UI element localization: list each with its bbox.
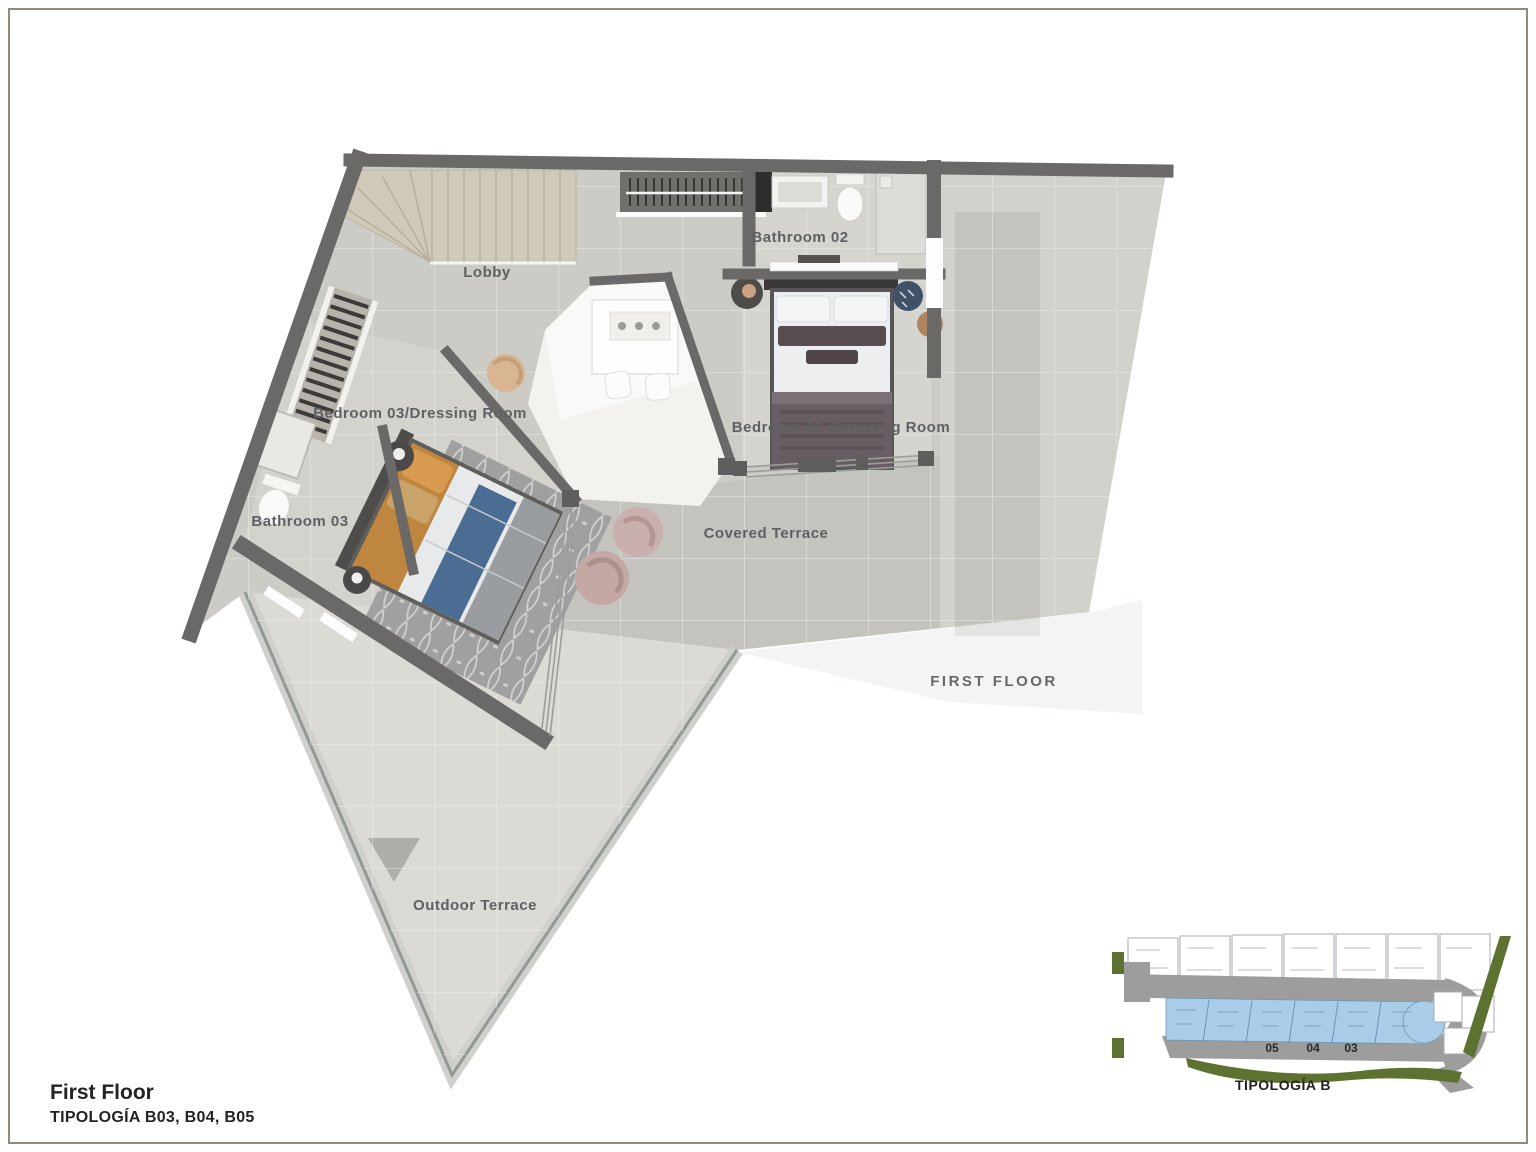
inset-unit-04: 04: [1306, 1041, 1320, 1055]
inset-caption: TIPOLOGÍA B: [1235, 1077, 1331, 1093]
inset-unit-05: 05: [1265, 1041, 1279, 1055]
kitchen-island: [592, 300, 678, 374]
toilet-icon: [837, 187, 863, 221]
label-bathroom02: Bathroom 02: [751, 229, 848, 246]
sheet-title: First Floor: [50, 1081, 154, 1104]
label-outdoor-terrace: Outdoor Terrace: [413, 897, 537, 914]
label-covered-terrace: Covered Terrace: [704, 525, 829, 542]
sheet-subtitle: TIPOLOGÍA B03, B04, B05: [50, 1107, 255, 1126]
toilet-tank: [836, 174, 864, 185]
stool: [604, 370, 631, 399]
bed-bedroom02: [764, 276, 898, 470]
siteplan-inset: 05 04 03 TIPOLOGÍA B: [1112, 934, 1511, 1093]
console-shelf: [770, 262, 898, 271]
floorplan-canvas: Lobby Bathroom 02 Bedroom 03/Dressing Ro…: [0, 0, 1536, 1152]
page: Lobby Bathroom 02 Bedroom 03/Dressing Ro…: [0, 0, 1536, 1152]
label-lobby: Lobby: [463, 264, 511, 281]
label-bedroom03: Bedroom 03/Dressing Room: [313, 405, 527, 422]
stool: [645, 373, 671, 401]
wall-void-top: [594, 277, 668, 281]
beanbag: [613, 507, 663, 557]
laptop: [798, 255, 840, 263]
inset-unit-03: 03: [1344, 1041, 1358, 1055]
label-bathroom03: Bathroom 03: [251, 513, 348, 530]
floorplan: Lobby Bathroom 02 Bedroom 03/Dressing Ro…: [186, 156, 1167, 1075]
door-leaf: [926, 238, 943, 308]
label-first-floor: FIRST FLOOR: [930, 673, 1058, 690]
pouf: [893, 281, 923, 311]
inset-highlight-units: [1166, 998, 1445, 1044]
label-bedroom02: Bedroom 02 /Dressing Room: [732, 419, 950, 436]
title-block: First Floor TIPOLOGÍA B03, B04, B05: [50, 1081, 255, 1126]
